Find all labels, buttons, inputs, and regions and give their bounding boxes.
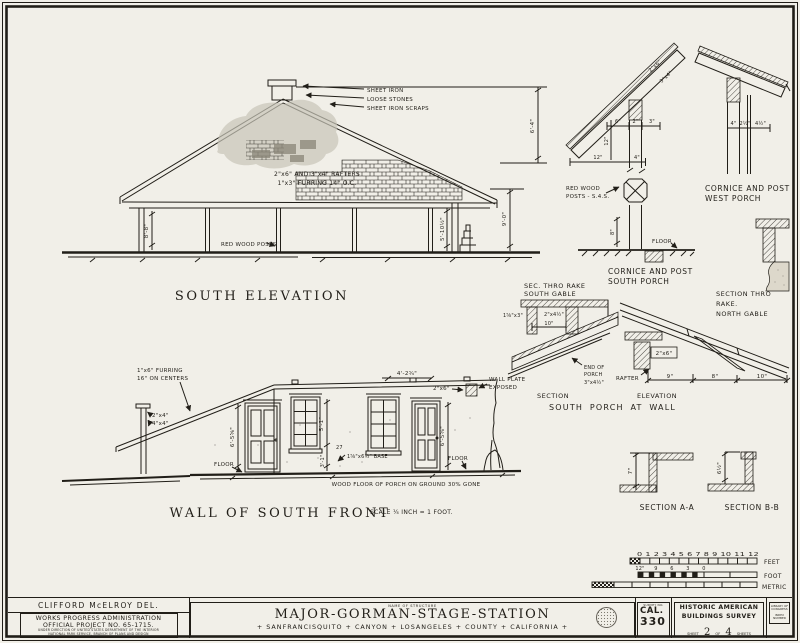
habs-drawing-sheet: 8'-8" 5'-10½" 9'-0" 6'-4" SHEET IRON LOO… [0,0,800,643]
pier-block [645,251,663,262]
graphic-scales: 0 1 2 3 4 5 6 7 8 9 10 11 12 FEET 12" 9 … [592,552,787,591]
chimney [272,86,292,100]
sheets-word: SHEETS [737,632,751,636]
rake-board [763,228,775,262]
sheet-total: 4 [725,627,731,638]
wall-plate-cap [625,332,662,340]
foot-tick-12: 12" [635,566,644,572]
feet-scale-label: FEET [764,559,780,566]
wall-of-south-front-drawing: 6'-5⅝" 5'-1" 3'-1" 6'-5⅝" 4'-2¾" 1"x6" F… [62,368,526,521]
adobe-broken-edge [484,381,503,471]
metric-scale-bar [592,582,757,588]
rafter-note-2: 1"x3" FURRING 14" O.C. [278,180,357,187]
lookout-block [629,100,642,120]
survey-number-cell: SURVEY NO. CAL. 330 [636,598,672,638]
post-and-wall [728,95,751,174]
dim-door-left: 6'-5⅝" [230,427,236,447]
wall-front-title: WALL OF SOUTH FRONT [170,506,391,521]
survey-number: 330 [638,616,669,627]
cornice-west-title-1: CORNICE AND POST [705,184,790,193]
metric-scale-label: METRIC [762,584,787,591]
cornice-west-porch-detail: 4" 2½" 4½" CORNICE AND POST WEST PORCH [695,46,790,203]
floor-label-right: FLOOR [448,456,468,462]
scale-note: SCALE ¼ INCH = 1 FOOT. [370,509,453,516]
dim-8: 8" [610,229,616,235]
chimney-note-2: LOOSE STONES [367,97,413,103]
lookout-block [727,78,740,102]
dim-2h: 2½" [740,120,751,127]
cornice-west-title-2: WEST PORCH [705,194,761,203]
drawing-sheet-svg: 8'-8" 5'-10½" 9'-0" 6'-4" SHEET IRON LOO… [0,0,800,643]
feet-scale-numbers: 0 1 2 3 4 5 6 7 8 9 10 11 12 [637,552,759,558]
rake-north-title-3: NORTH GABLE [716,310,768,318]
rake-north-title-1: SECTION THRO [716,290,771,298]
base-num: 27 [336,445,343,451]
redwood-posts [139,203,458,252]
dim-2x4: 2"x4½" [544,311,564,318]
rake-south-title-1: SEC. THRO RAKE [524,282,586,290]
post [627,120,645,249]
rafter-note-1: 2"x6" AND 3"x4" RAFTERS [274,171,360,178]
delineator-text: CLIFFORD McELROY DEL. [38,601,159,610]
floor-label-left: FLOOR [214,462,234,468]
dim-9: 9" [667,374,674,380]
foot-scale-label: FOOT [764,573,782,580]
door-left [243,400,282,472]
sheet-word: SHEET [687,632,699,636]
furring-note-2: 16" ON CENTERS [137,376,188,382]
door-right [410,398,442,471]
shed-post-cap [136,404,150,408]
roof-rafter [571,50,685,158]
dim-wall-right: 5'-10½" [439,217,446,241]
furring-note-1: 1"x6" FURRING [137,368,183,374]
roof-deck [521,300,608,307]
dim-2: 2" [633,119,639,125]
dim-height: 9'-0" [502,212,508,227]
post-octagon-section [624,179,647,202]
sheet-number: 2 [704,627,710,638]
of-word: OF [715,632,720,636]
rafter-label: RAFTER [616,376,639,382]
chimney-note-3: SHEET IRON SCRAPS [367,106,429,112]
wall-plate-note-2: EXPOSED [489,385,517,391]
window-right [366,394,401,455]
dim-4: 4" [731,121,737,127]
dim-3: 3" [649,119,655,125]
rake-north-gable-detail: SECTION THRO RAKE. NORTH GABLE [716,219,789,318]
dim-8: 8" [712,374,719,380]
dim-sill: 3'-1" [320,455,326,468]
section-aa-detail: 7" SECTION A-A [620,453,695,512]
foot-tick-9: 9 [654,566,657,572]
cornice-south-title-1: CORNICE AND POST [608,267,693,276]
structure-location: + SANFRANCISQUITO + CANYON + LOSANGELES … [191,623,634,631]
habs-line-1: HISTORIC AMERICAN [675,604,763,612]
end-note-2: PORCH [584,372,602,378]
foot-scale-segments [638,572,698,578]
plate-note: 2"x6" [433,386,450,392]
rake-south-title-2: SOUTH GABLE [524,290,576,298]
adobe-speckles [214,417,470,466]
section-aa-dim: 7" [628,468,634,475]
south-elevation-title: SOUTH ELEVATION [175,289,349,304]
exposed-wall-plate-block [466,384,477,396]
dim-12v: 12" [604,136,610,145]
cornice-south-title-2: SOUTH PORCH [608,277,670,286]
end-note-1: END OF [584,365,604,371]
dim-door-right: 6'-5⅝" [440,426,446,446]
foot-tick-0: 0 [702,566,705,572]
floor-label: FLOOR [652,239,672,245]
dim-roof: 6'-4" [530,119,536,134]
posts-note-2: POSTS - S.4.S. [566,194,609,200]
wpa-line-1: WORKS PROGRESS ADMINISTRATION [21,615,177,622]
rafter-label-2: 3"x4" [659,70,674,85]
rake-north-title-2: RAKE. [716,300,738,308]
foot-tick-6: 6 [670,566,673,572]
dim-12h: 12" [593,155,602,161]
caption-elevation: ELEVATION [637,392,677,400]
post-note-1: 2"x4" [152,413,169,419]
south-elevation-drawing: 8'-8" 5'-10½" 9'-0" 6'-4" SHEET IRON LOO… [62,80,547,304]
habs-cell: HISTORIC AMERICAN BUILDINGS SURVEY SHEET… [672,598,767,638]
plate-label: 2"x6" [656,351,673,357]
dim-1x3: 1⅝"x3" [503,313,523,319]
dim-4h: 4½" [755,120,766,127]
base-note: 1⅝"x6½" BASE [347,453,388,460]
loose-stone-steps [460,225,476,252]
rafter-label-1: 2"x6" [648,59,663,74]
posts-note: RED WOOD POSTS [221,242,277,248]
cornice-south-porch-detail: 6" 2" 3" 12" 4" 12" 8" 2"x6" 3"x4" RED W… [566,43,695,286]
roof-sheathing [566,43,678,149]
sheet-count-line: SHEET 2 OF 4 SHEETS [675,620,763,639]
post-block [634,342,650,369]
section-bb-title: SECTION B-B [725,503,780,512]
wall-plate-note-1: WALL PLATE [489,377,526,383]
gable-wall-stub [766,262,789,291]
delineator-cell: CLIFFORD McELROY DEL. [8,598,190,613]
section-aa-title: SECTION A-A [640,503,695,512]
ground-line-left [62,476,190,481]
wpa-line-4: NATIONAL PARK SERVICE, BRANCH OF PLANS A… [21,633,177,637]
foot-tick-3: 3 [686,566,689,572]
habs-line-2: BUILDINGS SURVEY [675,613,763,621]
posts-note-1: RED WOOD [566,186,600,192]
south-porch-at-wall-detail: END OF PORCH 3"x4½" RAFTER 2"x6" 9" 8" 1… [508,303,790,412]
section-bb-detail: 6½" SECTION B-B [708,452,779,512]
dim-wall-left: 8'-8" [144,224,150,239]
shed-roof [116,385,274,447]
chimney-cap [268,80,296,86]
wpa-cell: WORKS PROGRESS ADMINISTRATION OFFICIAL P… [8,613,190,638]
dim-10: 10" [544,321,553,327]
rake-cap [756,219,789,228]
section-bb-dim: 6½" [716,462,723,474]
roof-sheathing [698,46,788,87]
porch-note: WOOD FLOOR OF PORCH ON GROUND 30% GONE [332,482,481,488]
end-note-3: 3"x4½" [584,379,604,386]
window-left [289,394,322,453]
embossed-seal-stamp [596,607,617,628]
post-note-2: 4"x4" [152,421,169,427]
loc-line-1: LIBRARY OF CONGRESS [770,605,789,612]
title-block: CLIFFORD McELROY DEL. WORKS PROGRESS ADM… [8,597,792,637]
dim-4: 4" [634,155,640,161]
structure-name-cell: NAME OF STRUCTURE MAJOR-GORMAN-STAGE-STA… [190,598,636,638]
dim-10: 10" [757,374,767,380]
chimney-note-1: SHEET IRON [367,88,404,94]
caption-main: SOUTH PORCH AT WALL [549,403,676,412]
porch-floor-line [190,471,521,475]
structure-name: MAJOR-GORMAN-STAGE-STATION [191,608,634,622]
dim-window: 5'-1" [319,417,325,432]
loc-line-2: INDEX NUMBER [770,614,789,621]
caption-section: SECTION [537,392,569,400]
dim-top: 4'-2¾" [397,371,417,377]
dim-6: 6" [615,119,621,125]
index-number-cell: LIBRARY OF CONGRESS INDEX NUMBER [767,598,792,638]
